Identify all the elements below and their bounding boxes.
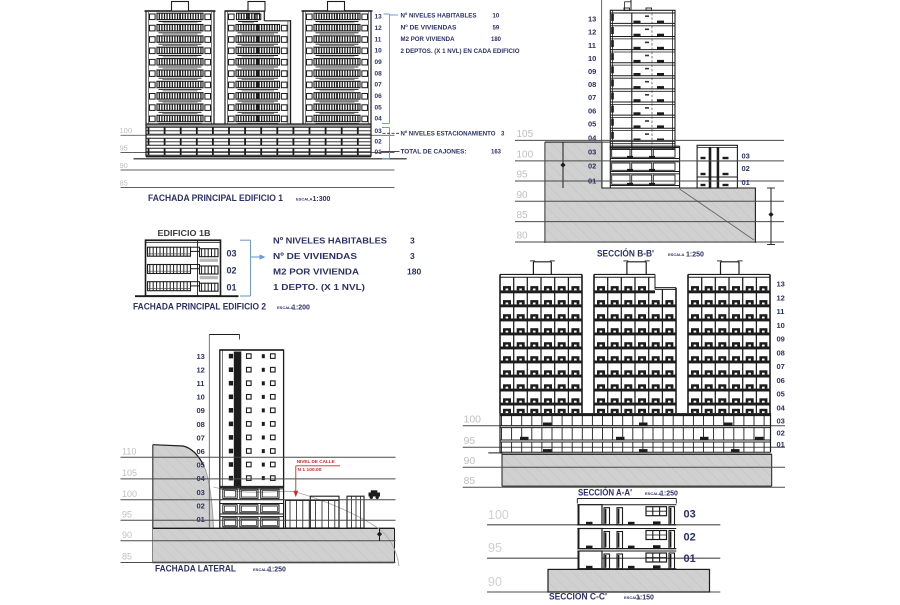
svg-text:08: 08	[375, 70, 383, 77]
svg-text:05: 05	[777, 390, 785, 399]
svg-text:1:250: 1:250	[660, 490, 678, 497]
svg-text:06: 06	[588, 106, 596, 115]
svg-text:Nº NIVELES HABITABLES: Nº NIVELES HABITABLES	[401, 14, 477, 20]
svg-text:1:250: 1:250	[268, 567, 286, 574]
svg-text:95: 95	[517, 170, 529, 181]
svg-text:NIVEL DE CALLE: NIVEL DE CALLE	[297, 459, 336, 465]
svg-text:01: 01	[588, 177, 596, 186]
svg-text:95: 95	[120, 143, 128, 152]
svg-text:10: 10	[493, 14, 500, 20]
svg-text:180: 180	[407, 267, 421, 277]
svg-text:03: 03	[588, 147, 596, 156]
svg-text:11: 11	[375, 36, 382, 43]
svg-text:08: 08	[588, 80, 596, 89]
svg-text:163: 163	[491, 150, 502, 156]
svg-text:N 1 100.00: N 1 100.00	[298, 467, 322, 473]
svg-text:09: 09	[375, 59, 383, 66]
svg-text:13: 13	[375, 14, 383, 21]
svg-text:SECCIÓN A-A': SECCIÓN A-A'	[578, 486, 632, 498]
svg-text:1:150: 1:150	[636, 595, 654, 601]
svg-text:07: 07	[197, 433, 205, 442]
svg-text:85: 85	[464, 475, 476, 487]
svg-text:02: 02	[197, 501, 205, 510]
svg-text:Nº DE VIVIENDAS: Nº DE VIVIENDAS	[401, 26, 457, 32]
svg-text:01: 01	[375, 149, 383, 156]
svg-text:13: 13	[197, 352, 205, 361]
svg-text:12: 12	[375, 25, 383, 32]
svg-text:FACHADA LATERAL: FACHADA LATERAL	[155, 564, 236, 575]
svg-text:11: 11	[777, 307, 785, 316]
svg-text:02: 02	[375, 139, 383, 146]
svg-text:Nº NIVELES HABITABLES: Nº NIVELES HABITABLES	[273, 236, 387, 246]
svg-text:90: 90	[464, 455, 476, 467]
svg-text:12: 12	[197, 366, 205, 375]
svg-text:EDIFICIO 1B: EDIFICIO 1B	[158, 228, 211, 238]
svg-text:95: 95	[488, 541, 502, 555]
svg-text:03: 03	[375, 128, 383, 135]
svg-text:3: 3	[410, 236, 415, 246]
svg-text:M2 POR VIVIENDA: M2 POR VIVIENDA	[273, 267, 359, 277]
svg-text:03: 03	[227, 249, 237, 259]
svg-text:Nº NIVELES ESTACIONAMIENTO: Nº NIVELES ESTACIONAMIENTO	[401, 131, 496, 137]
svg-text:TOTAL DE CAJONES:: TOTAL DE CAJONES:	[401, 150, 467, 156]
svg-text:1:200: 1:200	[292, 305, 310, 312]
svg-text:03: 03	[777, 416, 785, 425]
svg-text:09: 09	[197, 406, 205, 415]
svg-text:FACHADA PRINCIPAL EDIFICIO 2: FACHADA PRINCIPAL EDIFICIO 2	[133, 302, 266, 313]
svg-text:06: 06	[375, 93, 383, 100]
svg-text:100: 100	[517, 150, 534, 161]
svg-text:80: 80	[517, 231, 529, 242]
svg-text:3: 3	[410, 251, 415, 261]
svg-text:02: 02	[777, 429, 785, 438]
svg-text:1:300: 1:300	[313, 196, 331, 203]
svg-text:100: 100	[120, 126, 133, 135]
svg-text:90: 90	[517, 190, 529, 201]
svg-text:10: 10	[777, 321, 785, 330]
svg-text:90: 90	[488, 575, 502, 589]
svg-text:08: 08	[197, 420, 205, 429]
svg-text:05: 05	[375, 104, 383, 111]
svg-text:59: 59	[493, 26, 500, 32]
svg-text:03: 03	[684, 509, 696, 521]
svg-text:12: 12	[588, 28, 596, 37]
svg-text:180: 180	[491, 37, 502, 43]
svg-text:105: 105	[122, 468, 137, 478]
svg-text:11: 11	[197, 379, 205, 388]
svg-text:01: 01	[197, 515, 205, 524]
svg-text:01: 01	[777, 440, 785, 449]
svg-text:06: 06	[777, 376, 785, 385]
svg-text:11: 11	[588, 41, 596, 50]
svg-text:01: 01	[684, 553, 696, 565]
svg-text:M2 POR VIVIENDA: M2 POR VIVIENDA	[401, 37, 456, 43]
svg-text:ESCALA: ESCALA	[668, 252, 685, 257]
svg-text:SECCIÓN C-C': SECCIÓN C-C'	[549, 591, 607, 601]
svg-text:85: 85	[517, 210, 529, 221]
svg-text:04: 04	[375, 116, 383, 123]
svg-text:08: 08	[777, 348, 785, 357]
svg-text:1 DEPTO. (X 1 NVL): 1 DEPTO. (X 1 NVL)	[273, 282, 365, 292]
svg-text:95: 95	[464, 435, 476, 447]
svg-text:SECCIÓN B-B': SECCIÓN B-B'	[597, 248, 654, 260]
svg-text:04: 04	[588, 133, 597, 142]
svg-text:12: 12	[777, 293, 785, 302]
svg-text:05: 05	[588, 119, 596, 128]
svg-text:95: 95	[122, 509, 132, 519]
svg-text:09: 09	[777, 335, 785, 344]
svg-text:02: 02	[684, 532, 696, 544]
svg-text:02: 02	[588, 162, 596, 171]
svg-text:2 DEPTOS. (X 1 NVL) EN CADA ED: 2 DEPTOS. (X 1 NVL) EN CADA EDIFICIO	[401, 49, 520, 55]
svg-text:110: 110	[122, 446, 136, 456]
svg-text:04: 04	[777, 403, 786, 412]
svg-text:13: 13	[777, 280, 785, 289]
svg-text:100: 100	[464, 414, 482, 426]
svg-text:100: 100	[488, 508, 509, 522]
svg-text:100: 100	[122, 489, 137, 499]
svg-text:FACHADA PRINCIPAL EDIFICIO 1: FACHADA PRINCIPAL EDIFICIO 1	[148, 193, 284, 204]
svg-text:1:250: 1:250	[686, 252, 704, 259]
svg-text:90: 90	[120, 161, 128, 170]
svg-text:85: 85	[122, 552, 132, 562]
svg-text:85: 85	[120, 178, 128, 187]
svg-text:02: 02	[227, 265, 237, 275]
svg-text:07: 07	[588, 93, 596, 102]
svg-text:03: 03	[742, 151, 750, 160]
svg-text:07: 07	[375, 82, 383, 89]
svg-text:01: 01	[742, 178, 750, 187]
svg-text:Nº DE VIVIENDAS: Nº DE VIVIENDAS	[273, 251, 357, 261]
svg-text:10: 10	[197, 393, 205, 402]
svg-text:05: 05	[197, 460, 205, 469]
svg-text:01: 01	[227, 282, 237, 292]
svg-text:06: 06	[197, 447, 205, 456]
svg-text:09: 09	[588, 67, 596, 76]
svg-text:105: 105	[517, 129, 534, 140]
svg-text:10: 10	[588, 54, 596, 63]
svg-text:02: 02	[742, 164, 750, 173]
svg-text:ESCALA: ESCALA	[296, 197, 313, 202]
svg-text:07: 07	[777, 362, 785, 371]
svg-text:90: 90	[122, 530, 132, 540]
svg-text:10: 10	[375, 48, 383, 55]
svg-text:13: 13	[588, 15, 596, 24]
svg-text:03: 03	[197, 488, 205, 497]
